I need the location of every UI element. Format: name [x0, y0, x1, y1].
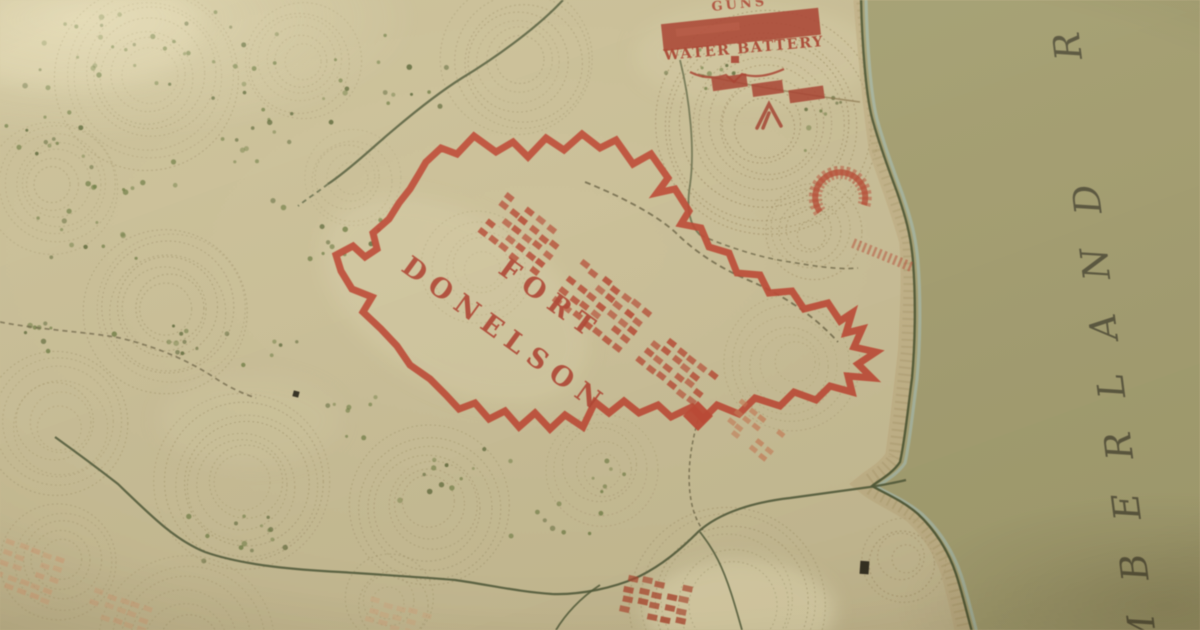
tree-dot	[325, 403, 330, 408]
tree-dot	[211, 96, 215, 100]
tree-dot	[329, 120, 334, 125]
tree-dot	[482, 447, 486, 451]
tree-dot	[56, 142, 59, 145]
tree-dot	[609, 467, 613, 471]
tree-dot	[91, 66, 96, 71]
tree-dot	[186, 51, 191, 56]
tree-dot	[368, 403, 372, 407]
tree-dot	[173, 183, 178, 188]
tree-dot	[819, 109, 822, 112]
tree-dot	[397, 498, 403, 504]
tree-dot	[260, 524, 263, 527]
tree-dot	[592, 477, 595, 480]
tree-dot	[588, 532, 591, 535]
tree-dot	[172, 40, 176, 44]
tree-dot	[82, 155, 85, 158]
tree-dot	[725, 64, 728, 67]
tree-dot	[250, 549, 254, 553]
tree-dot	[163, 46, 167, 50]
tree-dot	[361, 435, 366, 440]
tree-dot	[427, 90, 431, 94]
tree-dot	[111, 45, 114, 48]
tree-dot	[241, 363, 245, 367]
tree-dot	[701, 66, 704, 69]
tree-dot	[95, 221, 98, 224]
tree-dot	[599, 511, 604, 516]
tree-dot	[308, 256, 313, 261]
tree-dot	[93, 185, 97, 189]
tree-dot	[664, 71, 668, 75]
tree-dot	[535, 510, 540, 515]
tree-dot	[123, 189, 129, 195]
tree-dot	[543, 518, 547, 522]
tree-dot	[67, 110, 71, 114]
tree-dot	[295, 340, 298, 343]
tree-dot	[63, 22, 67, 26]
tree-dot	[195, 347, 198, 350]
tree-dot	[386, 101, 390, 105]
tree-dot	[824, 112, 827, 115]
tree-dot	[240, 148, 245, 153]
tree-dot	[449, 485, 454, 490]
tree-dot	[96, 72, 101, 77]
tree-dot	[243, 91, 247, 95]
tree-dot	[444, 65, 449, 70]
tree-dot	[508, 459, 512, 463]
tree-dot	[283, 545, 288, 550]
tree-dot	[342, 227, 348, 233]
tree-dot	[98, 35, 103, 40]
tree-dot	[17, 145, 22, 150]
tree-dot	[334, 58, 337, 61]
tree-dot	[270, 538, 274, 542]
tree-dot	[76, 56, 79, 59]
tree-dot	[600, 490, 603, 493]
tree-dot	[233, 64, 238, 69]
tree-dot	[806, 125, 811, 130]
tree-dot	[383, 90, 388, 95]
tree-dot	[24, 331, 27, 334]
tree-dot	[275, 32, 279, 36]
tree-dot	[273, 130, 277, 134]
tree-dot	[233, 160, 236, 163]
tree-dot	[272, 340, 276, 344]
tree-dot	[135, 257, 138, 260]
tree-dot	[261, 108, 265, 112]
tree-dot	[89, 165, 93, 169]
tree-dot	[102, 245, 106, 249]
tree-dot	[561, 530, 566, 535]
tree-dot	[184, 329, 189, 334]
tree-dot	[201, 559, 206, 564]
tree-dot	[67, 209, 72, 214]
tree-dot	[49, 327, 52, 330]
tree-dot	[150, 34, 155, 39]
tree-dot	[69, 243, 74, 248]
tree-dot	[112, 331, 117, 336]
tree-dot	[255, 159, 259, 163]
tree-dot	[438, 104, 443, 109]
tree-dot	[214, 10, 218, 14]
tree-dot	[267, 528, 271, 532]
tree-dot	[44, 140, 48, 144]
tree-dot	[322, 252, 325, 255]
tree-dot	[251, 126, 255, 130]
tree-dot	[221, 137, 225, 141]
tree-dot	[330, 244, 335, 249]
tree-dot	[181, 351, 185, 355]
tree-dot	[100, 24, 103, 27]
tree-dot	[39, 68, 42, 71]
tree-dot	[345, 435, 348, 438]
tree-dot	[140, 180, 145, 185]
tree-dot	[35, 152, 39, 156]
tree-dot	[52, 137, 56, 141]
tree-dot	[804, 149, 807, 152]
tree-dot	[242, 82, 247, 87]
tree-dot	[273, 61, 277, 65]
tree-dot	[242, 515, 246, 519]
tree-dot	[175, 350, 180, 355]
tree-dot	[171, 159, 176, 164]
tree-dot	[320, 224, 325, 229]
tree-dot	[279, 343, 283, 347]
map-canvas: GUNS WATER BATTERY FORT DO	[0, 0, 1200, 630]
tree-dot	[423, 473, 426, 476]
tree-dot	[49, 255, 53, 259]
tree-dot	[46, 85, 51, 90]
tree-dot	[60, 228, 63, 231]
tree-dot	[242, 541, 248, 547]
tree-dot	[377, 60, 381, 64]
tree-dot	[225, 331, 230, 336]
tree-dot	[252, 66, 257, 71]
tree-dot	[36, 216, 39, 219]
tree-dot	[604, 459, 609, 464]
tree-dot	[270, 198, 275, 203]
tree-dot	[46, 349, 51, 354]
tree-dot	[410, 93, 413, 96]
tree-dot	[167, 340, 172, 345]
tree-dot	[839, 101, 842, 104]
tree-dot	[603, 484, 607, 488]
tree-dot	[720, 68, 724, 72]
tree-dot	[707, 71, 712, 76]
tree-dot	[346, 405, 351, 410]
tree-dot	[5, 124, 9, 128]
tree-dot	[117, 12, 122, 17]
tree-dot	[333, 403, 336, 406]
tree-dot	[281, 205, 287, 211]
tree-dot	[235, 138, 239, 142]
tree-dot	[322, 97, 325, 100]
tree-dot	[267, 516, 270, 519]
tree-dot	[557, 501, 562, 506]
tree-dot	[391, 93, 395, 97]
tree-dot	[427, 489, 433, 495]
tree-dot	[186, 514, 191, 519]
light-patch-center-left	[160, 375, 340, 465]
map-photo: GUNS WATER BATTERY FORT DO	[0, 0, 1200, 630]
tree-dot	[85, 181, 90, 186]
tree-dot	[155, 81, 159, 85]
tree-dot	[43, 321, 47, 325]
tree-dot	[290, 112, 293, 115]
tree-dot	[62, 218, 67, 223]
tree-dot	[41, 339, 46, 344]
tree-dot	[133, 64, 136, 67]
tree-dot	[212, 60, 215, 63]
tree-dot	[472, 467, 475, 470]
battery-square-mark	[731, 56, 739, 63]
tree-dot	[74, 25, 78, 29]
tree-dot	[229, 26, 232, 29]
tree-dot	[234, 521, 238, 525]
tree-dot	[342, 90, 347, 95]
map-photo-stage: GUNS WATER BATTERY FORT DO	[0, 0, 1200, 630]
tree-dot	[704, 87, 707, 90]
tree-dot	[83, 245, 87, 249]
tree-dot	[267, 120, 272, 125]
tree-dot	[168, 83, 171, 86]
tree-dot	[439, 482, 444, 487]
tree-dot	[835, 102, 838, 105]
tree-dot	[124, 48, 127, 51]
tree-dot	[804, 108, 808, 112]
tree-dot	[179, 332, 183, 336]
tree-dot	[78, 125, 83, 130]
tree-dot	[99, 14, 105, 20]
tree-dot	[22, 83, 28, 89]
tree-dot	[622, 472, 626, 476]
tree-dot	[120, 232, 125, 237]
tree-dot	[270, 353, 274, 357]
tree-dot	[184, 22, 188, 26]
tree-dot	[43, 116, 46, 119]
tree-dot	[25, 129, 28, 132]
tree-dot	[131, 186, 135, 190]
building-mark	[860, 561, 870, 575]
tree-dot	[383, 34, 386, 37]
tree-dot	[133, 43, 136, 46]
tree-dot	[432, 458, 436, 462]
tree-dot	[173, 340, 179, 346]
tree-dot	[732, 72, 736, 76]
tree-dot	[205, 534, 209, 538]
tree-dot	[339, 78, 343, 82]
tree-dot	[407, 64, 413, 70]
tree-dot	[42, 40, 47, 45]
tree-dot	[172, 325, 175, 328]
tree-dot	[48, 144, 52, 148]
tree-dot	[445, 463, 449, 467]
tree-dot	[326, 240, 330, 244]
tree-dot	[183, 52, 186, 55]
tree-dot	[287, 140, 291, 144]
tree-dot	[509, 534, 514, 539]
tree-dot	[550, 526, 555, 531]
tree-dot	[460, 477, 463, 480]
tree-dot	[182, 340, 186, 344]
tree-dot	[241, 42, 246, 47]
tree-dot	[373, 395, 377, 399]
tree-dot	[431, 465, 436, 470]
